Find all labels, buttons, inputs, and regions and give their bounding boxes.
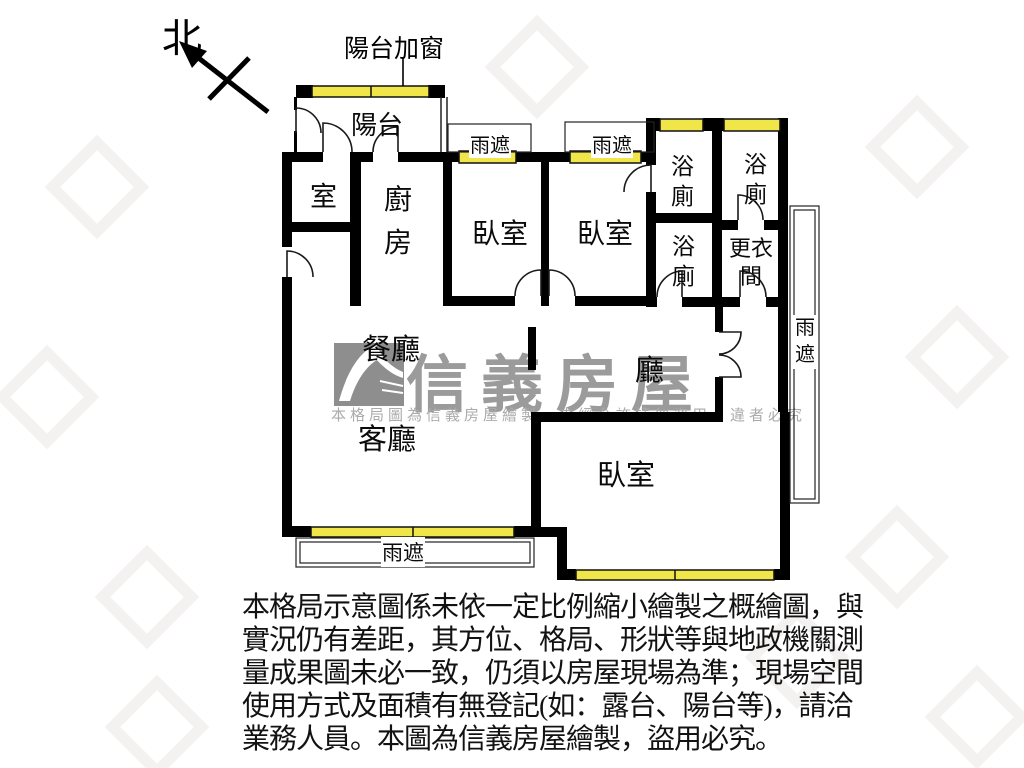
wall-segment [531, 412, 723, 422]
wall-segment [282, 277, 292, 537]
room-label-hall: 廳 [635, 347, 664, 389]
wall-segment [764, 220, 788, 230]
wall-segment [766, 297, 788, 307]
door-arc [296, 108, 321, 133]
room-label-master-bedroom: 臥室 [597, 452, 655, 494]
wall-segment [282, 222, 361, 232]
window-cap [296, 85, 313, 98]
room-label-dining: 餐廳 [362, 326, 420, 368]
wall-segment [531, 422, 541, 537]
disclaimer-line: 量成果圖未必一致，仍須以房屋現場為準；現場空間 [242, 657, 902, 690]
room-label-bedroom2: 臥室 [577, 212, 633, 252]
wall-segment [646, 192, 656, 307]
room-label-balcony: 陽台 [351, 105, 403, 142]
bath1-window [660, 119, 703, 131]
wall-segment [528, 327, 536, 370]
wall-segment [282, 152, 292, 247]
north-label: 北 [162, 6, 202, 64]
disclaimer-line: 實況仍有差距，其方位、格局、形狀等與地政機關測 [242, 624, 902, 657]
walls [282, 85, 790, 580]
north-arrow-line [196, 56, 268, 112]
room-label-kitchen: 廚房 [383, 179, 413, 266]
wall-segment [575, 296, 646, 306]
wall-segment [443, 152, 452, 306]
wall-segment [646, 297, 657, 307]
canopy-label-bed2: 雨遮 [591, 129, 633, 158]
double-door-arc [719, 355, 741, 377]
double-door-arc [719, 332, 741, 354]
canopy-label-right: 雨遮 [793, 315, 817, 369]
wall-segment [443, 296, 515, 306]
room-label-room: 室 [310, 175, 337, 214]
wall-segment [282, 526, 311, 537]
canopy-label-bottom: 雨遮 [381, 537, 425, 567]
room-label-bath-lower: 浴廁 [671, 232, 696, 292]
wall-segment [514, 526, 541, 537]
wall-segment [712, 118, 722, 307]
door-arc [323, 123, 352, 152]
room-label-bath-upper-right: 浴廁 [743, 150, 768, 210]
wall-segment [350, 152, 361, 306]
wall-segment [715, 377, 723, 412]
wall-segment [282, 152, 323, 162]
room-label-bath-upper-left: 浴廁 [670, 152, 695, 212]
room-label-bedroom1: 臥室 [472, 212, 528, 252]
door-arc [549, 270, 575, 296]
wall-segment [774, 569, 790, 580]
wall-segment [715, 307, 723, 332]
door-arc [287, 251, 313, 277]
floorplan-canvas: 信義房屋 本格局圖為信義房屋繪製，未經允許請勿盜用，違者必究 [0, 0, 1024, 768]
balcony-wall [294, 131, 297, 152]
door-arc [624, 165, 651, 192]
window-cap [428, 85, 445, 98]
disclaimer-line: 業務人員。本圖為信義房屋繪製，盜用必究。 [242, 723, 902, 756]
disclaimer-line: 本格局示意圖係未依一定比例縮小繪製之概繪圖，與 [242, 591, 902, 624]
disclaimer-line: 使用方式及面積有無登記(如：露台、陽台等)，請洽 [242, 690, 902, 723]
door-arc [515, 270, 541, 296]
wall-segment [541, 152, 549, 306]
balcony-window-callout: 陽台加窗 [344, 29, 444, 65]
wall-segment [682, 297, 740, 307]
disclaimer-text: 本格局示意圖係未依一定比例縮小繪製之概繪圖，與 實況仍有差距，其方位、格局、形狀… [242, 591, 902, 756]
wall-segment [780, 412, 790, 580]
bath2-window [724, 119, 780, 131]
wall-segment [557, 527, 567, 580]
wall-segment [646, 213, 722, 223]
room-label-dressing: 更衣間 [727, 235, 775, 290]
canopy-label-bed1: 雨遮 [469, 129, 511, 158]
wall-segment [712, 220, 738, 230]
room-label-living: 客廳 [358, 416, 416, 458]
wall-segment [778, 118, 788, 412]
balcony-thin-wall [441, 97, 447, 152]
